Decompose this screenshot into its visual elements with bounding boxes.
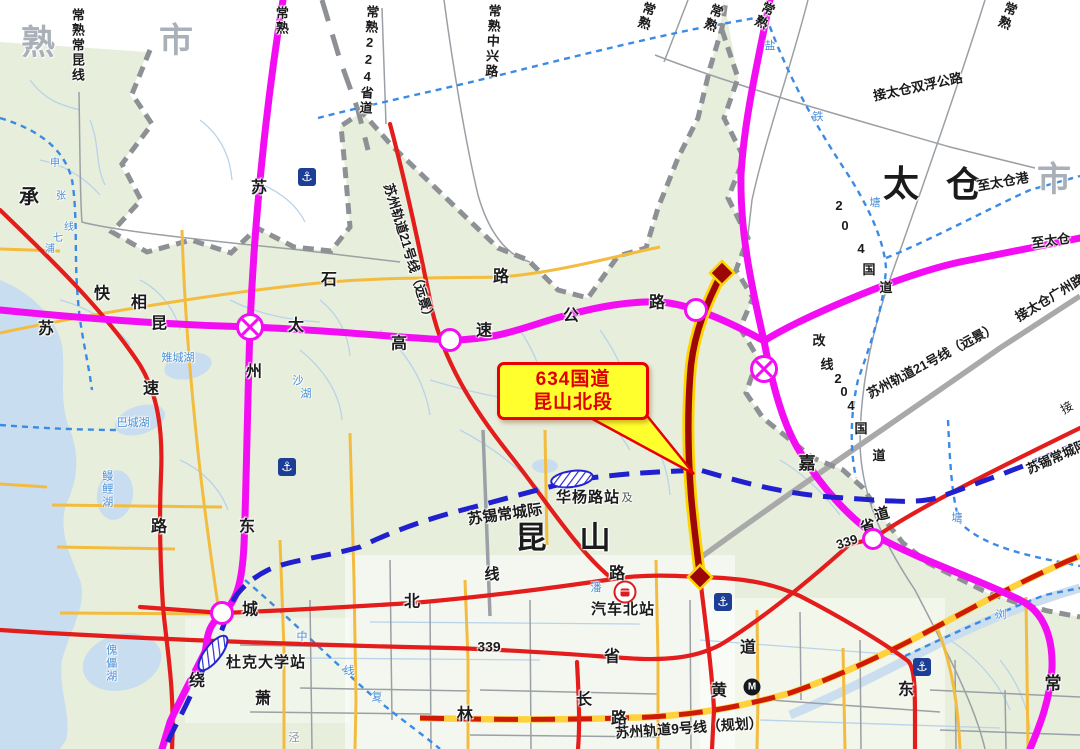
- callout-box: 634国道 昆山北段: [497, 362, 649, 420]
- callout-line2: 昆山北段: [533, 391, 613, 414]
- callout-line1: 634国道: [536, 368, 611, 391]
- map-canvas: 熟市市太仓昆山承嘉常苏快相昆太高速公路石路苏州速路东城绕北线路东黄长林萧路省道3…: [0, 0, 1080, 749]
